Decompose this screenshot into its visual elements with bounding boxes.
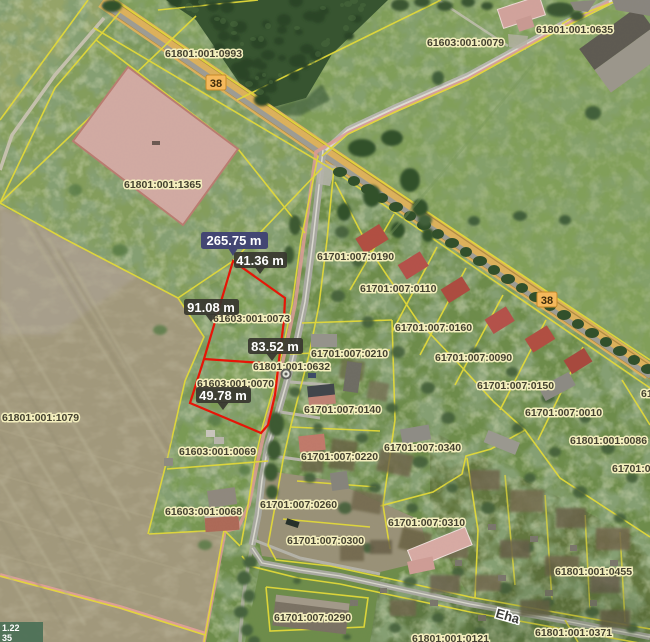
svg-text:61701:007:0300: 61701:007:0300	[287, 535, 364, 547]
svg-text:61801:001:1079: 61801:001:1079	[2, 412, 79, 424]
svg-text:61701:007:0160: 61701:007:0160	[395, 322, 472, 334]
svg-text:61701:007:0220: 61701:007:0220	[301, 451, 378, 463]
svg-text:61701:00: 61701:00	[612, 463, 650, 475]
svg-text:61701:007:0140: 61701:007:0140	[304, 404, 381, 416]
svg-text:61603:001:0069: 61603:001:0069	[179, 446, 256, 458]
svg-text:38: 38	[541, 295, 553, 307]
svg-text:61801:001:0993: 61801:001:0993	[165, 48, 242, 60]
svg-text:61701:007:0090: 61701:007:0090	[435, 352, 512, 364]
svg-text:41.36 m: 41.36 m	[236, 253, 284, 268]
svg-text:61701:007:0110: 61701:007:0110	[360, 283, 437, 295]
svg-text:91.08 m: 91.08 m	[187, 300, 235, 315]
svg-text:83.52 m: 83.52 m	[251, 339, 299, 354]
svg-text:61701:007:0340: 61701:007:0340	[384, 442, 461, 454]
svg-text:61701:007:0210: 61701:007:0210	[311, 348, 388, 360]
svg-text:61801:001:0635: 61801:001:0635	[536, 24, 613, 36]
svg-text:265.75 m: 265.75 m	[207, 233, 262, 248]
svg-text:61603:001:0079: 61603:001:0079	[427, 37, 504, 49]
svg-text:61801:001:0121: 61801:001:0121	[412, 633, 489, 642]
svg-text:61701:007:0290: 61701:007:0290	[274, 612, 351, 624]
svg-text:35: 35	[2, 633, 12, 642]
svg-text:61801:001:0086: 61801:001:0086	[570, 435, 647, 447]
svg-text:61701:007:0260: 61701:007:0260	[260, 499, 337, 511]
svg-text:61701:007:0310: 61701:007:0310	[388, 517, 465, 529]
svg-text:49.78 m: 49.78 m	[199, 388, 247, 403]
svg-text:61801:001:0632: 61801:001:0632	[253, 361, 330, 373]
svg-text:61801:001:0371: 61801:001:0371	[535, 627, 612, 639]
svg-text:61801:001:0455: 61801:001:0455	[555, 566, 632, 578]
svg-text:61701:007:0190: 61701:007:0190	[317, 251, 394, 263]
svg-text:61701:007:0150: 61701:007:0150	[477, 380, 554, 392]
svg-text:61801:001:1365: 61801:001:1365	[124, 179, 201, 191]
svg-text:617: 617	[641, 388, 650, 400]
svg-text:1.22: 1.22	[2, 623, 20, 633]
svg-text:61701:007:0010: 61701:007:0010	[525, 407, 602, 419]
svg-text:61603:001:0068: 61603:001:0068	[165, 506, 242, 518]
svg-text:38: 38	[210, 78, 222, 90]
